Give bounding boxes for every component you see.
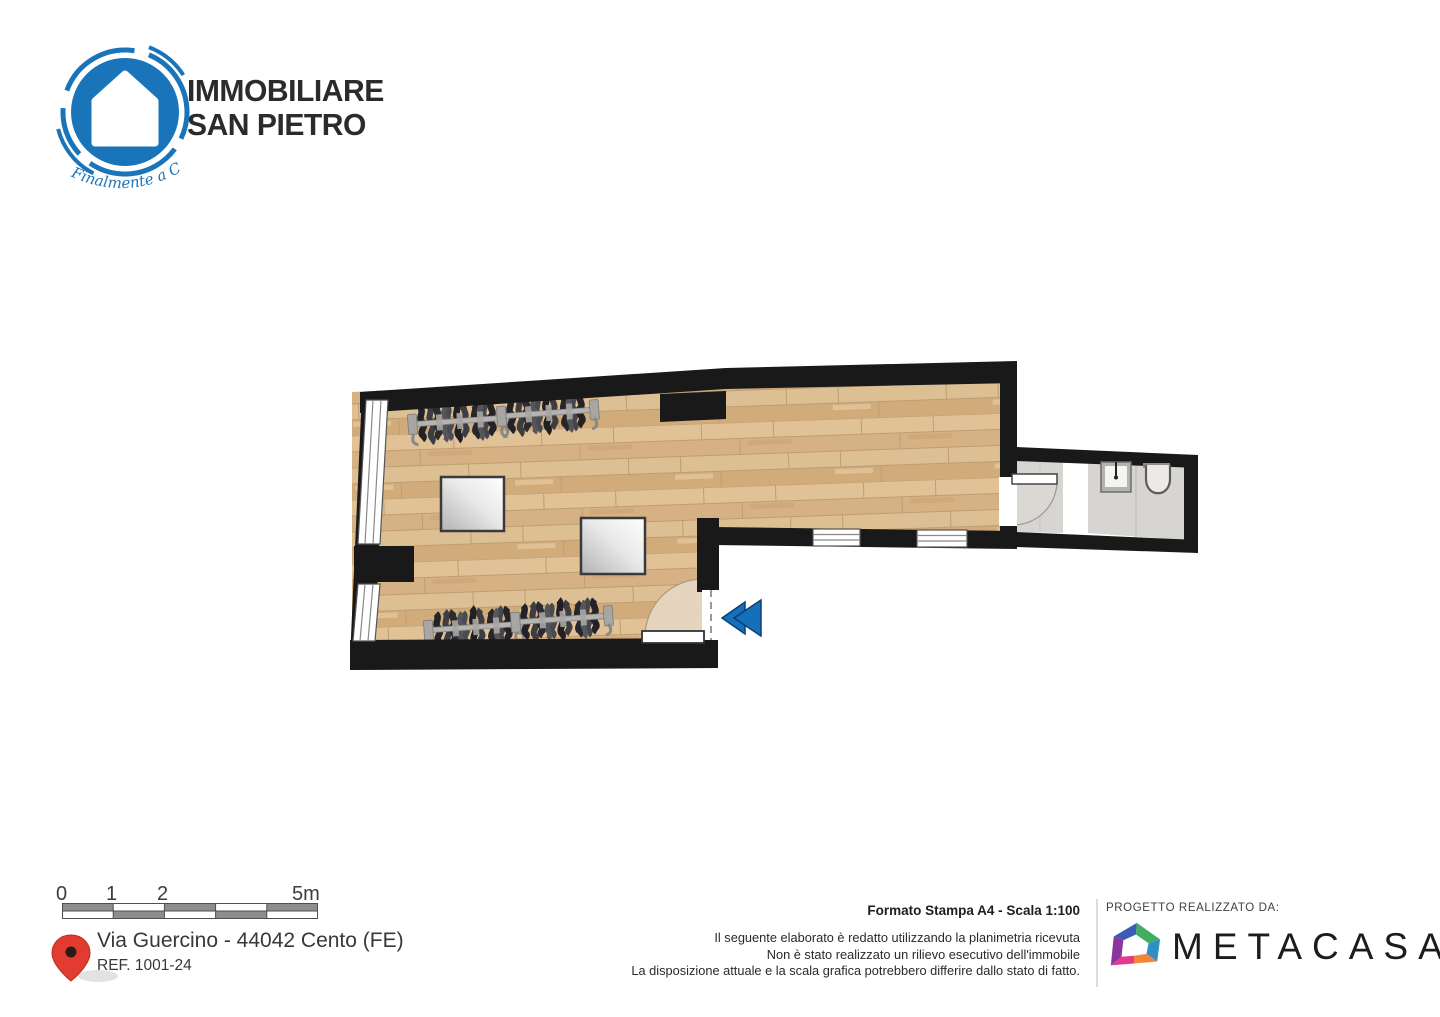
scale-label-2: 2 (157, 883, 168, 906)
credits-label: PROGETTO REALIZZATO DA: (1106, 902, 1280, 914)
print-info: Formato Stampa A4 - Scala 1:100 Il segue… (631, 903, 1080, 980)
window (917, 530, 967, 547)
floor-plan (0, 0, 1440, 1017)
wall-pier (660, 391, 726, 422)
entrance-door-leaf (642, 631, 704, 643)
metacasa-logo-icon (1103, 921, 1165, 977)
toilet-icon (1146, 465, 1170, 493)
disclaimer-line: La disposizione attuale e la scala grafi… (631, 963, 1080, 980)
display-table (441, 477, 504, 531)
scale-bar (62, 903, 318, 919)
wall-pillar (354, 546, 414, 582)
wall-wing-right (1184, 455, 1198, 553)
footer-divider (1096, 899, 1098, 987)
window (813, 529, 860, 546)
scale-label-5m: 5m (292, 883, 320, 906)
scale-label-0: 0 (56, 883, 67, 906)
display-table (581, 518, 645, 574)
scale-label-1: 1 (106, 883, 117, 906)
metacasa-brand-text: METACASA (1172, 926, 1440, 968)
print-format: Formato Stampa A4 - Scala 1:100 (631, 903, 1080, 918)
disclaimer-line: Il seguente elaborato è redatto utilizza… (631, 930, 1080, 947)
property-address: Via Guercino - 44042 Cento (FE) (97, 929, 404, 953)
property-reference: REF. 1001-24 (97, 957, 192, 975)
disclaimer-line: Non è stato realizzato un rilievo esecut… (631, 947, 1080, 964)
entrance-arrow-icon (722, 600, 761, 636)
wc-door-leaf (1012, 474, 1057, 484)
wc-doorway-opening (1063, 462, 1088, 533)
brochure-page: Finalmente a Casa IMMOBILIARE SAN PIETRO (0, 0, 1440, 1017)
window (353, 584, 380, 641)
